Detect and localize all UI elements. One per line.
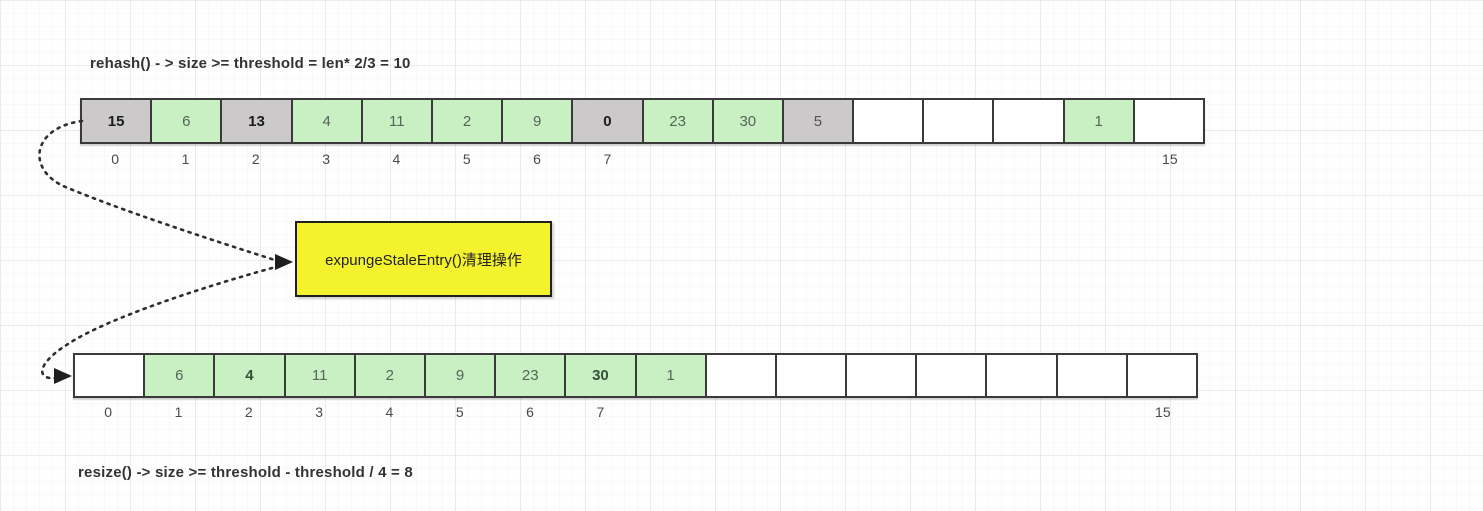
top-array-cell-1: 6 bbox=[150, 100, 220, 142]
top-array-cell-9: 30 bbox=[712, 100, 782, 142]
bottom-array-cell-13 bbox=[985, 355, 1055, 396]
bottom-array-cell-3: 11 bbox=[284, 355, 354, 396]
bottom-array-index-9 bbox=[706, 404, 776, 422]
top-array-cell-15 bbox=[1133, 100, 1203, 142]
bottom-array-cell-11 bbox=[845, 355, 915, 396]
top-array-index-6: 6 bbox=[502, 151, 572, 169]
top-array-index-7: 7 bbox=[572, 151, 642, 169]
top-array-index-4: 4 bbox=[361, 151, 431, 169]
bottom-array-index-10 bbox=[776, 404, 846, 422]
bottom-array-cell-9 bbox=[705, 355, 775, 396]
bottom-array-cell-1: 6 bbox=[143, 355, 213, 396]
bottom-array-cell-10 bbox=[775, 355, 845, 396]
bottom-array-cells: 64112923301 bbox=[73, 353, 1198, 398]
bottom-array-index-14 bbox=[1057, 404, 1127, 422]
bottom-array-cell-15 bbox=[1126, 355, 1196, 396]
bottom-array-index-7: 7 bbox=[565, 404, 635, 422]
bottom-array-cell-8: 1 bbox=[635, 355, 705, 396]
top-array-index-14 bbox=[1064, 151, 1134, 169]
top-array-cells: 15613411290233051 bbox=[80, 98, 1205, 144]
top-array-index-13 bbox=[994, 151, 1064, 169]
bottom-array-index-15: 15 bbox=[1128, 404, 1198, 422]
top-array-index-2: 2 bbox=[221, 151, 291, 169]
bottom-array-index-5: 5 bbox=[425, 404, 495, 422]
top-array-cell-4: 11 bbox=[361, 100, 431, 142]
bottom-array-index-row: 0123456715 bbox=[73, 404, 1198, 422]
expunge-stale-entry-note: expungeStaleEntry()清理操作 bbox=[295, 221, 552, 297]
bottom-array-index-8 bbox=[636, 404, 706, 422]
bottom-array-index-11 bbox=[846, 404, 916, 422]
bottom-array-index-6: 6 bbox=[495, 404, 565, 422]
bottom-array-index-13 bbox=[987, 404, 1057, 422]
top-array-index-0: 0 bbox=[80, 151, 150, 169]
bottom-array-index-1: 1 bbox=[143, 404, 213, 422]
bottom-array-index-4: 4 bbox=[354, 404, 424, 422]
top-array-cell-6: 9 bbox=[501, 100, 571, 142]
top-array-cell-10: 5 bbox=[782, 100, 852, 142]
top-array-index-10 bbox=[783, 151, 853, 169]
top-array-cell-14: 1 bbox=[1063, 100, 1133, 142]
bottom-array-cell-12 bbox=[915, 355, 985, 396]
top-array-index-11 bbox=[853, 151, 923, 169]
resize-condition-title: resize() -> size >= threshold - threshol… bbox=[78, 464, 413, 481]
bottom-array-cell-6: 23 bbox=[494, 355, 564, 396]
top-array-cell-13 bbox=[992, 100, 1062, 142]
bottom-array-cell-7: 30 bbox=[564, 355, 634, 396]
top-array-cell-8: 23 bbox=[642, 100, 712, 142]
expunge-arrowhead-icon bbox=[275, 254, 293, 270]
top-array-index-9 bbox=[713, 151, 783, 169]
top-array-cell-5: 2 bbox=[431, 100, 501, 142]
resize-arrowhead-icon bbox=[54, 368, 72, 384]
diagram-canvas: rehash() - > size >= threshold = len* 2/… bbox=[0, 0, 1483, 511]
flow-arrows-layer bbox=[0, 0, 1483, 511]
top-array-cell-0: 15 bbox=[82, 100, 150, 142]
bottom-array-cell-14 bbox=[1056, 355, 1126, 396]
top-array-index-row: 0123456715 bbox=[80, 151, 1205, 169]
bottom-array-cell-5: 9 bbox=[424, 355, 494, 396]
top-array-cell-2: 13 bbox=[220, 100, 290, 142]
top-array-index-15: 15 bbox=[1135, 151, 1205, 169]
bottom-array-cell-2: 4 bbox=[213, 355, 283, 396]
top-array-index-1: 1 bbox=[150, 151, 220, 169]
top-array-index-8 bbox=[643, 151, 713, 169]
top-array-cell-7: 0 bbox=[571, 100, 641, 142]
bottom-array-cell-0 bbox=[75, 355, 143, 396]
bottom-array-index-3: 3 bbox=[284, 404, 354, 422]
top-array-cell-3: 4 bbox=[291, 100, 361, 142]
top-array-cell-11 bbox=[852, 100, 922, 142]
top-array-cell-12 bbox=[922, 100, 992, 142]
bottom-array-index-2: 2 bbox=[214, 404, 284, 422]
bottom-array-index-12 bbox=[917, 404, 987, 422]
rehash-condition-title: rehash() - > size >= threshold = len* 2/… bbox=[90, 55, 411, 72]
top-array-index-12 bbox=[924, 151, 994, 169]
bottom-array-cell-4: 2 bbox=[354, 355, 424, 396]
top-array-index-3: 3 bbox=[291, 151, 361, 169]
bottom-array-index-0: 0 bbox=[73, 404, 143, 422]
top-array-index-5: 5 bbox=[432, 151, 502, 169]
